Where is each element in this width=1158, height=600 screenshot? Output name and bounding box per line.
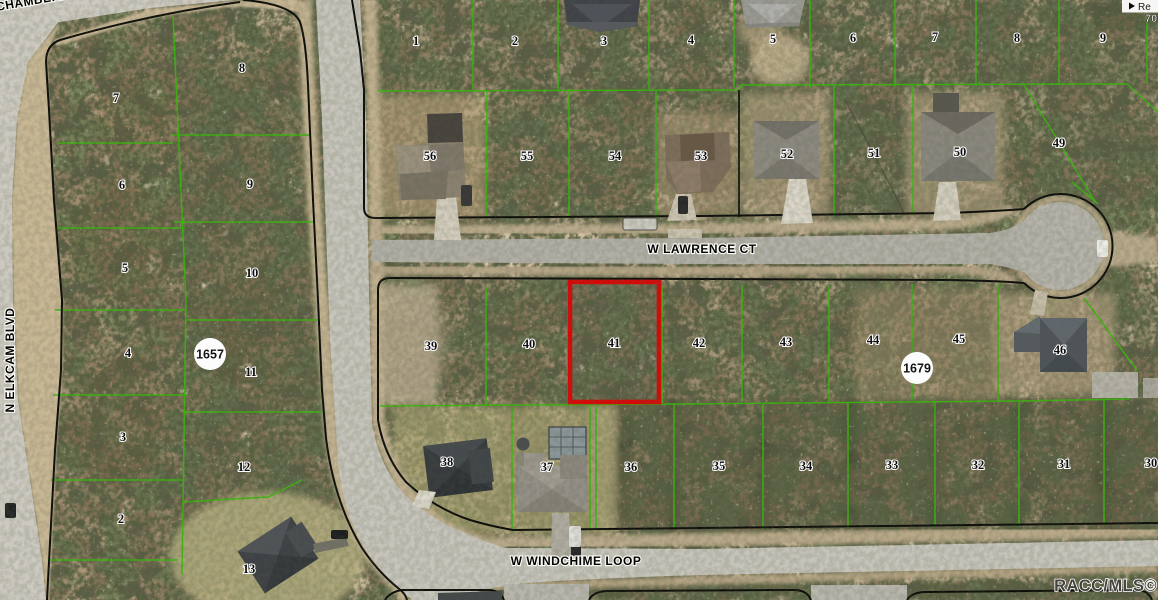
svg-text:5: 5	[122, 261, 128, 275]
svg-text:49: 49	[1053, 136, 1066, 150]
svg-text:55: 55	[521, 149, 534, 163]
svg-text:9: 9	[247, 177, 253, 191]
svg-text:54: 54	[609, 149, 622, 163]
svg-text:50: 50	[954, 145, 967, 159]
svg-text:6: 6	[119, 178, 125, 192]
svg-text:51: 51	[868, 146, 881, 160]
svg-text:2: 2	[512, 34, 518, 48]
svg-text:1: 1	[413, 34, 419, 48]
svg-text:42: 42	[693, 336, 706, 350]
svg-text:7: 7	[932, 30, 938, 44]
svg-text:32: 32	[972, 458, 985, 472]
svg-text:8: 8	[1014, 31, 1020, 45]
svg-text:41: 41	[608, 336, 621, 350]
svg-text:45: 45	[953, 332, 966, 346]
svg-text:700: 700	[1145, 13, 1158, 25]
svg-text:53: 53	[695, 149, 708, 163]
svg-text:44: 44	[867, 333, 880, 347]
svg-text:1657: 1657	[196, 348, 224, 362]
svg-text:38: 38	[441, 455, 454, 469]
svg-text:1679: 1679	[903, 362, 931, 376]
svg-text:35: 35	[713, 459, 726, 473]
svg-text:34: 34	[800, 459, 813, 473]
svg-text:43: 43	[780, 335, 793, 349]
svg-text:Re: Re	[1138, 2, 1151, 13]
svg-text:13: 13	[243, 562, 256, 576]
svg-text:30: 30	[1145, 456, 1158, 470]
svg-text:W WINDCHIME LOOP: W WINDCHIME LOOP	[511, 554, 642, 568]
svg-text:31: 31	[1058, 457, 1071, 471]
svg-text:8: 8	[239, 61, 245, 75]
svg-text:4: 4	[688, 33, 695, 47]
svg-text:33: 33	[886, 458, 899, 472]
svg-text:N ELKCAM BLVD: N ELKCAM BLVD	[3, 308, 17, 413]
svg-text:RACC/MLS©: RACC/MLS©	[1054, 577, 1157, 595]
svg-text:39: 39	[425, 339, 438, 353]
svg-text:3: 3	[120, 430, 126, 444]
svg-text:2: 2	[118, 512, 124, 526]
svg-text:W LAWRENCE CT: W LAWRENCE CT	[647, 242, 756, 256]
svg-text:9: 9	[1100, 31, 1106, 45]
svg-text:6: 6	[850, 31, 856, 45]
svg-text:4: 4	[125, 346, 132, 360]
svg-text:11: 11	[245, 365, 257, 379]
svg-text:3: 3	[601, 34, 607, 48]
svg-text:56: 56	[424, 149, 437, 163]
svg-text:46: 46	[1054, 343, 1067, 357]
svg-text:7: 7	[113, 91, 119, 105]
svg-text:52: 52	[781, 147, 794, 161]
svg-text:36: 36	[625, 460, 638, 474]
svg-text:5: 5	[770, 32, 776, 46]
svg-text:37: 37	[541, 460, 554, 474]
svg-text:12: 12	[238, 460, 251, 474]
svg-text:40: 40	[523, 337, 536, 351]
svg-text:10: 10	[246, 266, 259, 280]
